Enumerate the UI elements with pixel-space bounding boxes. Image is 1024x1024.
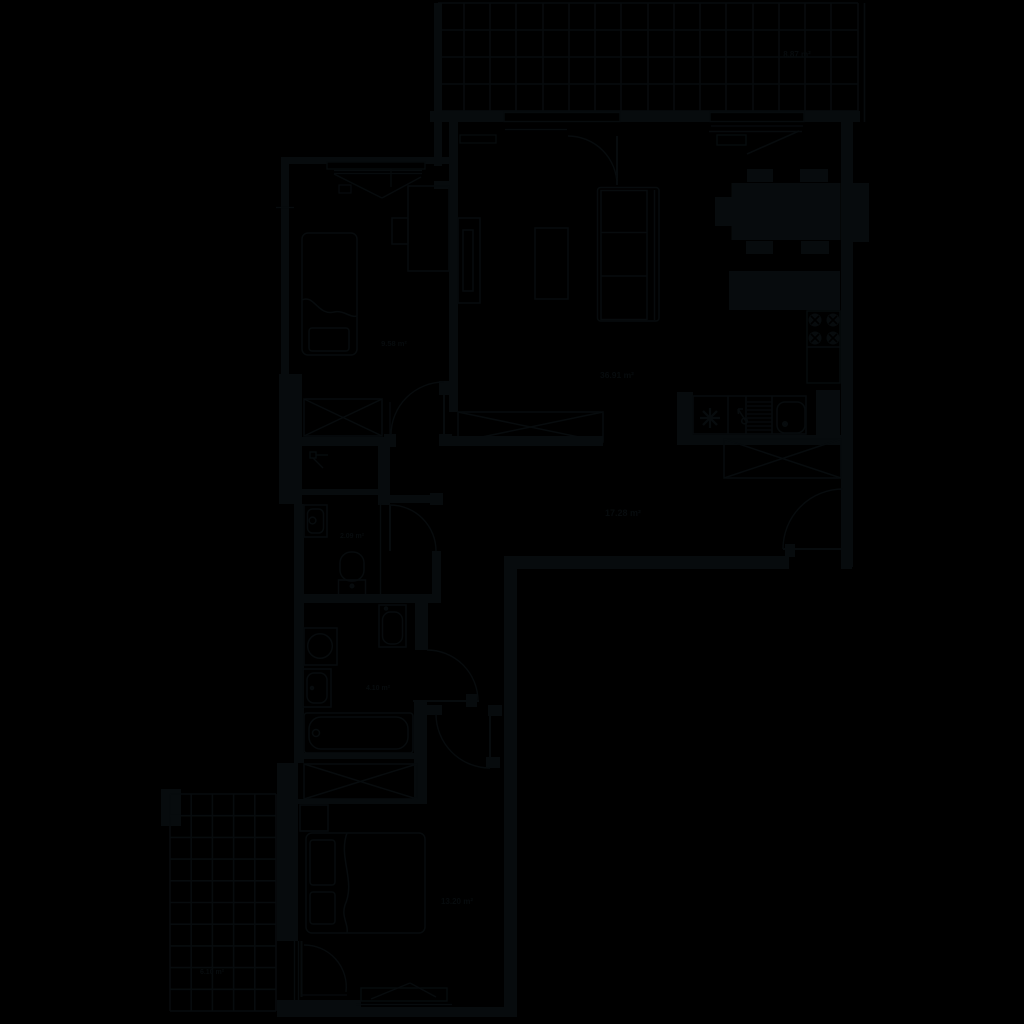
svg-text:13.20 m²: 13.20 m²: [441, 897, 473, 906]
svg-text:17.28 m²: 17.28 m²: [605, 508, 641, 518]
svg-text:4.10 m²: 4.10 m²: [366, 685, 391, 692]
svg-text:2.09 m²: 2.09 m²: [340, 533, 365, 540]
svg-text:8.87 m²: 8.87 m²: [783, 50, 811, 59]
svg-text:9.58 m²: 9.58 m²: [381, 339, 407, 348]
svg-text:36.91 m²: 36.91 m²: [600, 370, 634, 380]
svg-text:6.10 m²: 6.10 m²: [200, 969, 225, 976]
